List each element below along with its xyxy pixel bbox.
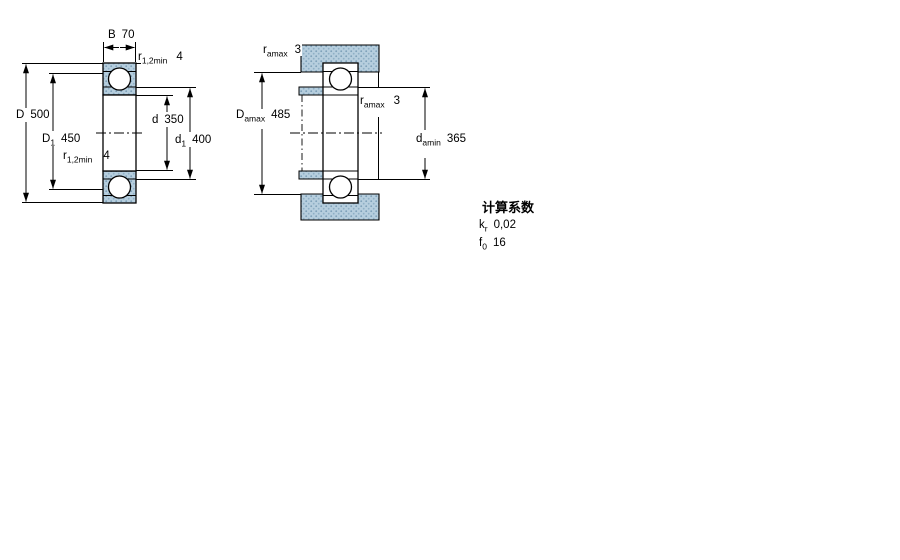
dim-label-d1: d1400 bbox=[175, 134, 211, 148]
shaft-shoulder-bottom bbox=[299, 171, 323, 179]
ball-bottom-right-view bbox=[330, 176, 352, 198]
dim-label-D1: D1450 bbox=[42, 133, 80, 147]
right-view bbox=[290, 45, 382, 220]
ball-top-left-view bbox=[109, 68, 131, 90]
cad-linework bbox=[0, 0, 900, 560]
dim-label-damin: damin365 bbox=[416, 133, 466, 147]
ball-top-right-view bbox=[330, 68, 352, 90]
dim-label-r12min-bottom: r1,2min4 bbox=[63, 150, 110, 164]
calculation-factors-title: 计算系数 bbox=[482, 197, 534, 216]
dim-label-Damax: Damax485 bbox=[236, 109, 290, 123]
bearing-dimension-drawing: B70 r1,2min4 D500 D1450 r1,2min4 d350 d1… bbox=[0, 0, 900, 560]
ball-bottom-left-view bbox=[109, 176, 131, 198]
factor-f0: f016 bbox=[479, 237, 506, 251]
shaft-shoulder-top bbox=[299, 87, 323, 95]
dim-label-d: d350 bbox=[152, 114, 184, 127]
dim-label-ramax-mid: ramax3 bbox=[360, 95, 400, 109]
dim-label-ramax-top: ramax3 bbox=[263, 44, 302, 58]
dim-label-r12min-top: r1,2min4 bbox=[138, 51, 183, 65]
factor-kr: kr0,02 bbox=[479, 219, 516, 233]
left-bearing-section bbox=[96, 63, 143, 203]
dim-label-D: D500 bbox=[16, 109, 50, 122]
dim-label-B: B70 bbox=[108, 29, 134, 42]
